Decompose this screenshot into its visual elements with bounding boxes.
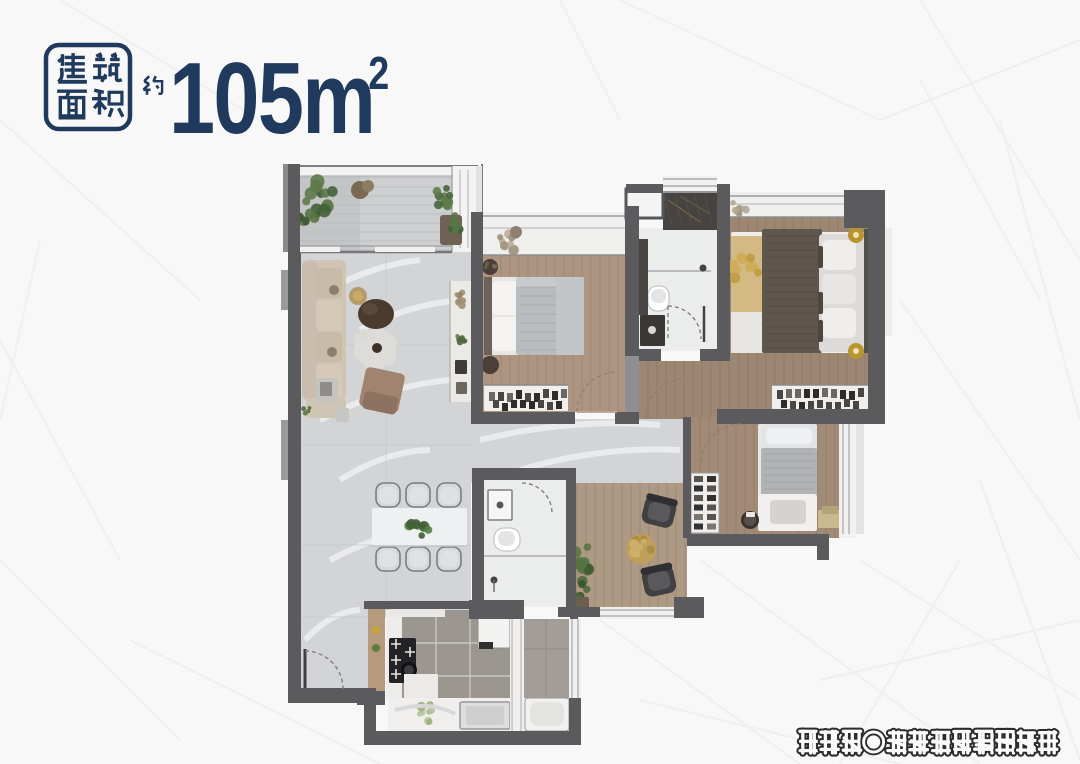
svg-text:2: 2 bbox=[368, 47, 389, 98]
svg-text:105m: 105m bbox=[169, 41, 374, 155]
